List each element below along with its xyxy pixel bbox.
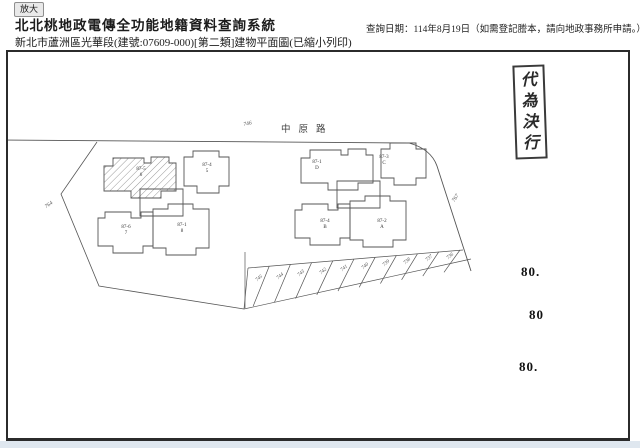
road-name-label: 中原路 (281, 121, 334, 135)
building-cluster-right (295, 143, 426, 247)
building-number-label: 87-45 (202, 163, 211, 174)
building-number-label: 87-56 (136, 167, 145, 178)
approval-stamp: 代為決行 (512, 64, 547, 159)
system-title: 北北桃地政電傳全功能地籍資料查詢系統 (15, 14, 276, 34)
road-line (8, 140, 471, 271)
side-number-label: 80 (529, 307, 544, 323)
plan-subtitle: 新北市蘆洲區光華段(建號:07609-000)[第二類]建物平面圖(已縮小列印) (15, 34, 352, 50)
floor-plan-canvas: 中原路 746 764 767 代為決行 87-5687-4587-6787-1… (6, 50, 630, 441)
page: 放大 北北桃地政電傳全功能地籍資料查詢系統 查詢日期：114年8月19日（如需登… (0, 0, 640, 448)
parcel-divider-line (296, 263, 312, 299)
parcel-divider-line (274, 264, 290, 302)
side-number-label: 80. (519, 359, 538, 375)
building-number-label: 87-1D (312, 160, 321, 171)
building-number-label: 87-2A (377, 219, 386, 230)
building-number-label: 87-67 (121, 225, 130, 236)
side-number-label: 80. (521, 264, 540, 280)
building-number-label: 87-4B (320, 219, 329, 230)
parcel-divider-line (253, 266, 269, 306)
building-number-label: 87-18 (177, 223, 186, 234)
building-number-label: 87-3C (379, 155, 388, 166)
query-date-text: 查詢日期：114年8月19日（如需登記謄本，請向地政事務所申請。） (366, 21, 640, 35)
page-bottom-strip (0, 441, 640, 448)
